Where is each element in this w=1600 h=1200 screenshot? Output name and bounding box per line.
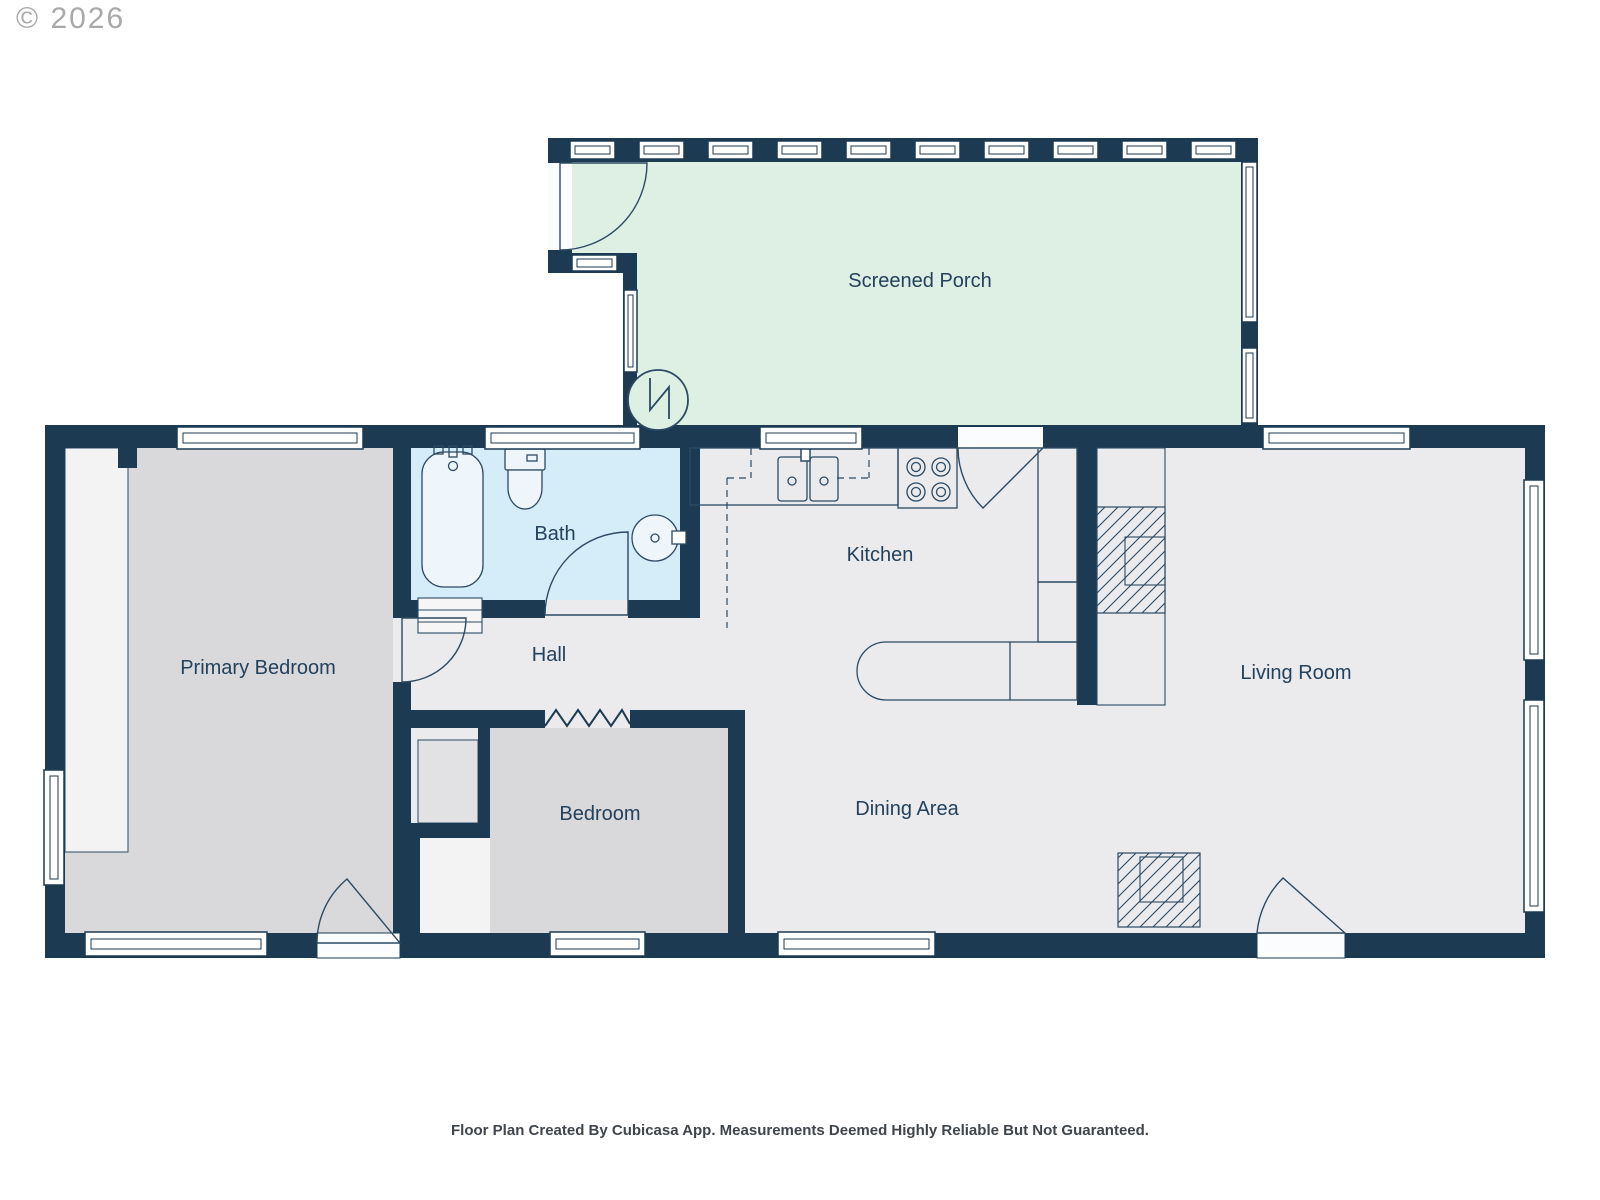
footer-disclaimer: Floor Plan Created By Cubicasa App. Meas… <box>0 1122 1600 1139</box>
hall-cabinet <box>418 598 482 633</box>
label-hall: Hall <box>532 644 566 666</box>
label-screened-porch: Screened Porch <box>848 270 991 292</box>
bathtub <box>422 446 483 587</box>
window-icon <box>1053 141 1098 159</box>
window-icon <box>570 141 615 159</box>
window-icon <box>485 427 640 449</box>
window-icon <box>915 141 960 159</box>
window-icon <box>550 932 645 956</box>
window-icon <box>1242 162 1257 322</box>
window-icon <box>984 141 1029 159</box>
window-icon <box>1263 427 1410 449</box>
door-opening <box>317 933 400 958</box>
window-icon <box>846 141 891 159</box>
window-icon <box>624 290 637 372</box>
label-dining-area: Dining Area <box>855 798 959 820</box>
room-bedroom <box>490 728 728 933</box>
window-icon <box>777 141 822 159</box>
floor-plan-page: © 2026 <box>0 0 1600 1200</box>
window-icon <box>639 141 684 159</box>
bedroom-closet-bottom <box>420 838 490 933</box>
water-heater <box>628 370 688 430</box>
bedroom-closet-top <box>418 740 478 823</box>
floor-register <box>1118 853 1200 927</box>
window-icon <box>1524 700 1544 912</box>
label-bath: Bath <box>534 523 575 545</box>
toilet <box>505 449 545 509</box>
window-icon <box>1524 480 1544 660</box>
label-primary-bedroom: Primary Bedroom <box>180 657 336 679</box>
window-icon <box>85 932 267 956</box>
fireplace <box>1097 507 1165 613</box>
window-icon <box>44 770 64 885</box>
floor-plan-drawing: Screened Porch Bath Kitchen Hall Primary… <box>0 0 1600 1200</box>
window-icon <box>572 255 617 271</box>
window-icon <box>778 932 935 956</box>
window-icon <box>1242 348 1257 423</box>
window-icon <box>760 427 862 449</box>
window-icon <box>177 427 363 449</box>
door-opening <box>958 427 1043 449</box>
label-living-room: Living Room <box>1240 662 1351 684</box>
door-opening <box>1257 933 1345 958</box>
label-bedroom: Bedroom <box>559 803 640 825</box>
room-floors <box>65 162 1525 933</box>
window-icon <box>1191 141 1236 159</box>
window-icon <box>708 141 753 159</box>
window-icon <box>1122 141 1167 159</box>
label-kitchen: Kitchen <box>847 544 914 566</box>
primary-bedroom-closet <box>65 448 128 852</box>
